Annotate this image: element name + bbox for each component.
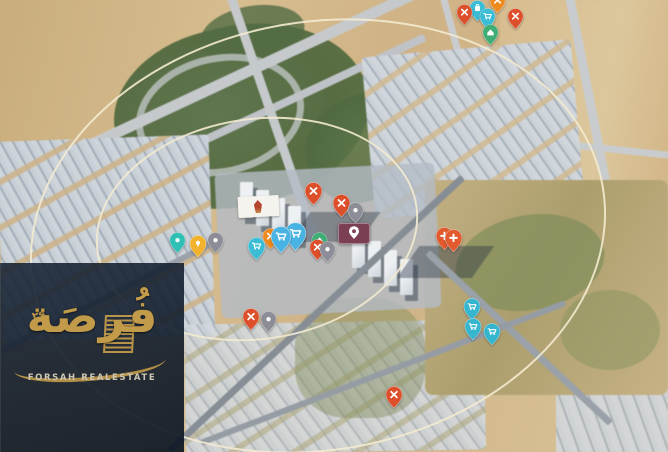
brand-arabic-logo: فُرصَة — [0, 293, 184, 339]
map-pin-cart[interactable] — [483, 323, 501, 346]
aerial-map-canvas[interactable]: ٢٩ فُرصَة FORSAH REALESTATE — [0, 0, 668, 452]
map-pin-dot[interactable] — [347, 202, 364, 224]
map-pin-restaurant[interactable] — [385, 386, 403, 409]
map-pin-dot[interactable] — [260, 311, 277, 333]
map-pin-dot[interactable] — [169, 232, 186, 254]
map-pin-house[interactable] — [482, 24, 499, 46]
map-pin-cart[interactable] — [270, 226, 292, 254]
map-pin-restaurant[interactable] — [456, 4, 473, 26]
map-pin-dot[interactable] — [319, 241, 336, 263]
property-location-marker[interactable] — [338, 223, 370, 244]
map-pin-restaurant[interactable] — [507, 8, 524, 30]
map-pin-plus[interactable] — [444, 229, 463, 253]
brand-name: FORSAH REALESTATE — [12, 373, 172, 383]
map-pin-cart[interactable] — [464, 318, 482, 341]
map-pin-bulb[interactable] — [189, 235, 207, 258]
billboard-sign — [237, 195, 279, 218]
watermark-panel: ٢٩ فُرصَة FORSAH REALESTATE — [0, 263, 184, 452]
map-pin-dot[interactable] — [207, 232, 224, 254]
billboard-logo — [253, 200, 264, 214]
map-pin-restaurant[interactable] — [304, 182, 323, 206]
map-pin-cart[interactable] — [247, 237, 266, 261]
map-pin-restaurant[interactable] — [242, 308, 260, 331]
